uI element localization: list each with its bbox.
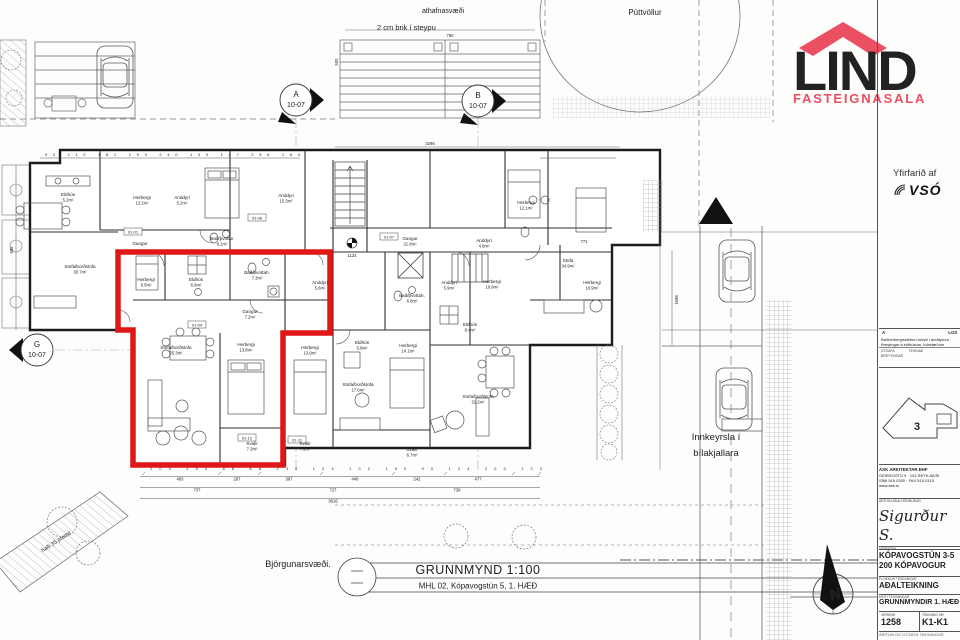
rev-label: BREYTINGAR bbox=[879, 354, 960, 358]
svg-text:Bað/þvottah.: Bað/þvottah. bbox=[244, 269, 270, 275]
svg-text:13.8m²: 13.8m² bbox=[239, 348, 253, 353]
svg-text:9.1m²: 9.1m² bbox=[217, 242, 228, 247]
svg-text:7.3m²: 7.3m² bbox=[252, 276, 263, 281]
svg-text:Herbergi: Herbergi bbox=[517, 200, 535, 205]
svg-text:Anddyri: Anddyri bbox=[476, 238, 492, 243]
svg-text:Svalir: Svalir bbox=[406, 447, 418, 452]
svg-text:5.9m²: 5.9m² bbox=[444, 286, 455, 291]
hedge bbox=[597, 345, 622, 460]
svg-text:5.2m²: 5.2m² bbox=[63, 198, 74, 203]
signature-label: ÁRITUN AÐALHÖNNUÐAR bbox=[879, 499, 960, 503]
svg-text:Herbergi: Herbergi bbox=[583, 280, 601, 285]
svg-text:01-07: 01-07 bbox=[384, 234, 395, 239]
drawing-type-block: FLOKKUR TEIKNINGAR AÐALTEIKNING bbox=[879, 576, 960, 594]
drawing-name-block: HEITI TEIKNINGAR GRUNNMYNDIR 1. HÆÐ bbox=[879, 594, 960, 611]
svg-text:01-04: 01-04 bbox=[192, 322, 203, 327]
top-left-deck bbox=[35, 42, 135, 118]
logo-wordmark: LIND bbox=[793, 39, 916, 92]
svg-text:6.9m²: 6.9m² bbox=[191, 283, 202, 288]
left-planting bbox=[0, 40, 30, 328]
dim: 727 bbox=[330, 488, 338, 493]
svg-text:B: B bbox=[475, 91, 480, 100]
rev-initials: LG3 bbox=[948, 330, 957, 336]
project-block: VERKEFNI KÓPAVOGSTÚN 3-5 200 KÓPAVOGUR bbox=[879, 546, 960, 575]
rev-letter: A bbox=[882, 330, 885, 336]
review-label: Yfirfarið af bbox=[893, 168, 936, 179]
svg-text:10.9m²: 10.9m² bbox=[585, 286, 599, 291]
lind-logo: LIND FASTEIGNASALA bbox=[793, 18, 957, 106]
car-icon bbox=[97, 46, 133, 108]
svg-text:Stofa/borðstofa: Stofa/borðstofa bbox=[64, 263, 96, 269]
dim: 3296 bbox=[425, 141, 435, 146]
dim-total: 3616 bbox=[328, 499, 338, 504]
dim: 585 bbox=[9, 246, 14, 254]
dim: 440 bbox=[352, 477, 360, 482]
revision-table: A LG3 Baðherbergisklefum breytt í anddyr… bbox=[879, 328, 960, 368]
svg-text:Bað/þvottur: Bað/þvottur bbox=[210, 235, 234, 241]
dim: 760 bbox=[447, 33, 455, 38]
dim: 387 bbox=[286, 477, 294, 482]
svg-text:Herbergi: Herbergi bbox=[301, 345, 319, 350]
review-block: Yfirfarið af VSÓ bbox=[893, 168, 960, 198]
sheet-number: K1-K1 bbox=[922, 617, 958, 628]
drawing-title: GRUNNMYND 1:100 bbox=[416, 563, 541, 577]
svg-text:25.3m²: 25.3m² bbox=[169, 351, 183, 356]
dim: 493 bbox=[177, 477, 185, 482]
svg-text:Gangur: Gangur bbox=[132, 241, 148, 246]
north-arrow: N bbox=[813, 544, 853, 614]
svg-text:Eldhús: Eldhús bbox=[355, 340, 370, 345]
svg-text:13.2m²: 13.2m² bbox=[135, 201, 149, 206]
svg-text:Gangur: Gangur bbox=[242, 309, 258, 314]
section-marker-g: G 10-07 bbox=[9, 334, 53, 366]
svg-text:01-12: 01-12 bbox=[242, 435, 253, 440]
svg-text:Eldhús: Eldhús bbox=[189, 277, 204, 282]
project-line2: 200 KÓPAVOGUR bbox=[879, 561, 960, 571]
innkeyrsla-line1: Innkeyrsla í bbox=[692, 432, 741, 443]
svg-text:8.4m²: 8.4m² bbox=[465, 328, 476, 333]
svg-text:Svalir: Svalir bbox=[246, 441, 258, 446]
puttvollur-label: Púttvöllur bbox=[628, 8, 662, 17]
svg-text:14.1m²: 14.1m² bbox=[401, 349, 415, 354]
svg-text:Herbergi: Herbergi bbox=[237, 342, 255, 347]
dim: 477 bbox=[475, 477, 483, 482]
svg-text:15.3m²: 15.3m² bbox=[279, 199, 293, 204]
dim: 500 bbox=[334, 58, 339, 66]
dim: 737 bbox=[194, 488, 202, 493]
svg-text:34.9m²: 34.9m² bbox=[561, 264, 575, 269]
svg-text:10-07: 10-07 bbox=[28, 352, 46, 359]
car-icon bbox=[719, 240, 755, 302]
entrance-triangle-icon bbox=[699, 197, 733, 224]
svg-text:13.9m²: 13.9m² bbox=[303, 351, 317, 356]
caption-block: GRUNNMYND 1:100 MHL 02, Kópavogstún 5, 1… bbox=[338, 558, 877, 596]
rev-note-1: Baðherbergisklefum breytt í anddyrum bbox=[879, 337, 960, 342]
svg-text:6.7m²: 6.7m² bbox=[407, 453, 418, 458]
svg-text:1124: 1124 bbox=[347, 253, 357, 258]
dim: 739 bbox=[454, 488, 462, 493]
svg-text:12.1m²: 12.1m² bbox=[519, 206, 533, 211]
svg-text:6.8m²: 6.8m² bbox=[407, 299, 418, 304]
svg-text:Eldhús: Eldhús bbox=[61, 192, 76, 197]
svg-text:10-07: 10-07 bbox=[287, 102, 305, 109]
key-plan: 3 bbox=[879, 372, 960, 464]
sloped-walkway bbox=[0, 492, 128, 592]
review-firm-logo: VSÓ bbox=[909, 182, 942, 198]
paving-band bbox=[553, 96, 771, 118]
number-block: VERKNR. 1258 TEIKNING NR. K1-K1 bbox=[879, 611, 960, 632]
sheet-divider bbox=[877, 0, 878, 640]
svg-text:Eldhús: Eldhús bbox=[463, 322, 478, 327]
svg-text:01-01: 01-01 bbox=[128, 229, 139, 234]
rev-col-utgafa: ÚTGÁFA bbox=[881, 349, 895, 353]
floor-plan-page: Púttvöllur bbox=[0, 0, 960, 640]
drawing-type: AÐALTEIKNING bbox=[879, 581, 960, 591]
section-marker-b: B 10-07 bbox=[460, 85, 506, 125]
svg-text:Bað/þvottah.: Bað/þvottah. bbox=[399, 292, 425, 298]
svg-text:Stofa/borðstofa: Stofa/borðstofa bbox=[342, 381, 374, 387]
key-plan-number: 3 bbox=[914, 421, 920, 433]
dim: 287 bbox=[234, 477, 242, 482]
svg-text:Herbergi: Herbergi bbox=[137, 277, 155, 282]
svg-text:5.8m²: 5.8m² bbox=[357, 346, 368, 351]
svg-text:8.5m²: 8.5m² bbox=[141, 283, 152, 288]
drawing-subtitle: MHL 02, Kópavogstún 5, 1. HÆÐ bbox=[419, 582, 538, 591]
signature-block: ÁRITUN AÐALHÖNNUÐAR Sigurður S. bbox=[879, 498, 960, 545]
svg-text:Stofa/borðstofa: Stofa/borðstofa bbox=[462, 393, 494, 399]
svg-text:01-06: 01-06 bbox=[252, 215, 263, 220]
svg-text:4.8m²: 4.8m² bbox=[479, 244, 490, 249]
svg-text:Stofa/borðstofa: Stofa/borðstofa bbox=[160, 344, 192, 350]
bjorgunarsvaedi-label: Björgunarsvæði. bbox=[265, 559, 331, 569]
titleblock-footnote: ÁRITUN OG ÚTGÁFA TEIKNINGAR bbox=[879, 632, 960, 637]
svg-text:30.7m²: 30.7m² bbox=[73, 270, 87, 275]
svg-text:7.2m²: 7.2m² bbox=[245, 315, 256, 320]
svg-text:5.2m²: 5.2m² bbox=[177, 201, 188, 206]
svg-text:10.9m²: 10.9m² bbox=[485, 285, 499, 290]
svg-text:Herbergi: Herbergi bbox=[133, 195, 151, 200]
svg-text:21.2m²: 21.2m² bbox=[471, 400, 485, 405]
dim: 1698 bbox=[674, 295, 679, 305]
svg-text:Anddyri: Anddyri bbox=[174, 195, 190, 200]
svg-text:10-07: 10-07 bbox=[469, 103, 487, 110]
svg-text:5.6m²: 5.6m² bbox=[315, 286, 326, 291]
svg-text:G: G bbox=[34, 340, 40, 349]
svg-text:Anddyri: Anddyri bbox=[441, 280, 457, 285]
dim: 242 bbox=[414, 477, 422, 482]
athafnasvaedi-label: athafnasvæði bbox=[422, 7, 464, 15]
drawing-name: GRUNNMYNDIR 1. HÆÐ bbox=[879, 599, 960, 608]
signature: Sigurður S. bbox=[879, 507, 960, 550]
svg-text:Gangur: Gangur bbox=[402, 236, 418, 241]
svg-text:17.6m²: 17.6m² bbox=[351, 388, 365, 393]
svg-text:7.3m²: 7.3m² bbox=[247, 447, 258, 452]
logo-subtitle: FASTEIGNASALA bbox=[793, 91, 957, 106]
svg-text:21.8m²: 21.8m² bbox=[403, 242, 417, 247]
vso-arcs-icon bbox=[893, 183, 909, 197]
firm-web: www.ask.is bbox=[879, 483, 960, 488]
svg-text:Anddyri: Anddyri bbox=[312, 280, 328, 285]
svg-text:Herbergi: Herbergi bbox=[483, 279, 501, 284]
brik-label: 2 cm brik í steypu bbox=[377, 23, 436, 32]
floor-plan-svg: Púttvöllur bbox=[0, 0, 877, 640]
svg-text:Stofa: Stofa bbox=[563, 258, 574, 263]
paving-patch bbox=[643, 180, 663, 232]
rev-col-teiknad: TEIKNAÐ bbox=[909, 349, 924, 353]
svg-text:7.3m²: 7.3m² bbox=[300, 447, 311, 452]
svg-text:Svalir: Svalir bbox=[299, 441, 311, 446]
innkeyrsla-line2: bílakjallara bbox=[693, 448, 739, 459]
svg-text:Anddyri: Anddyri bbox=[278, 193, 294, 198]
project-number: 1258 bbox=[881, 617, 917, 628]
paving-strip bbox=[766, 300, 792, 640]
svg-text:A: A bbox=[293, 90, 299, 99]
section-marker-a: A 10-07 bbox=[278, 84, 324, 124]
firm-block: ASK ARKITEKTAR EHF GEIRSGÖTU 9 · 101 REY… bbox=[879, 464, 960, 499]
svg-text:Herbergi: Herbergi bbox=[399, 343, 417, 348]
project-line1: KÓPAVOGSTÚN 3-5 bbox=[879, 551, 960, 561]
dim: 771 bbox=[581, 239, 589, 244]
